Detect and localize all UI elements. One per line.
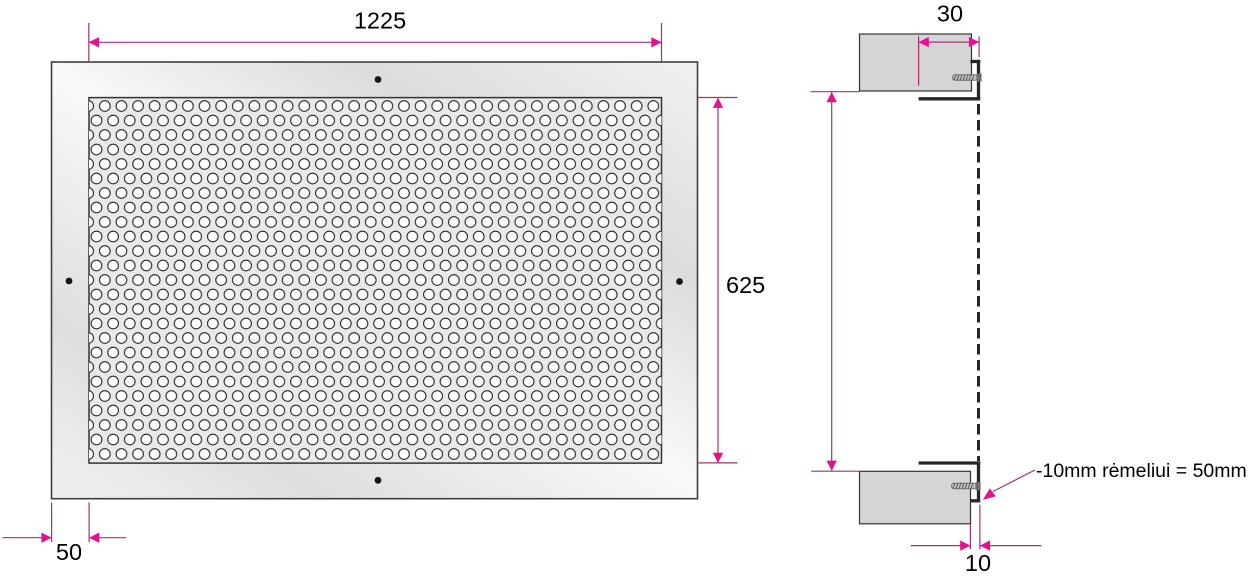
svg-text:10: 10 [965, 550, 991, 576]
svg-text:625: 625 [726, 272, 765, 298]
svg-text:1225: 1225 [354, 8, 406, 34]
svg-text:50: 50 [56, 539, 82, 565]
svg-text:-10mm rėmeliui = 50mm: -10mm rėmeliui = 50mm [1036, 460, 1247, 482]
svg-text:30: 30 [937, 1, 963, 27]
